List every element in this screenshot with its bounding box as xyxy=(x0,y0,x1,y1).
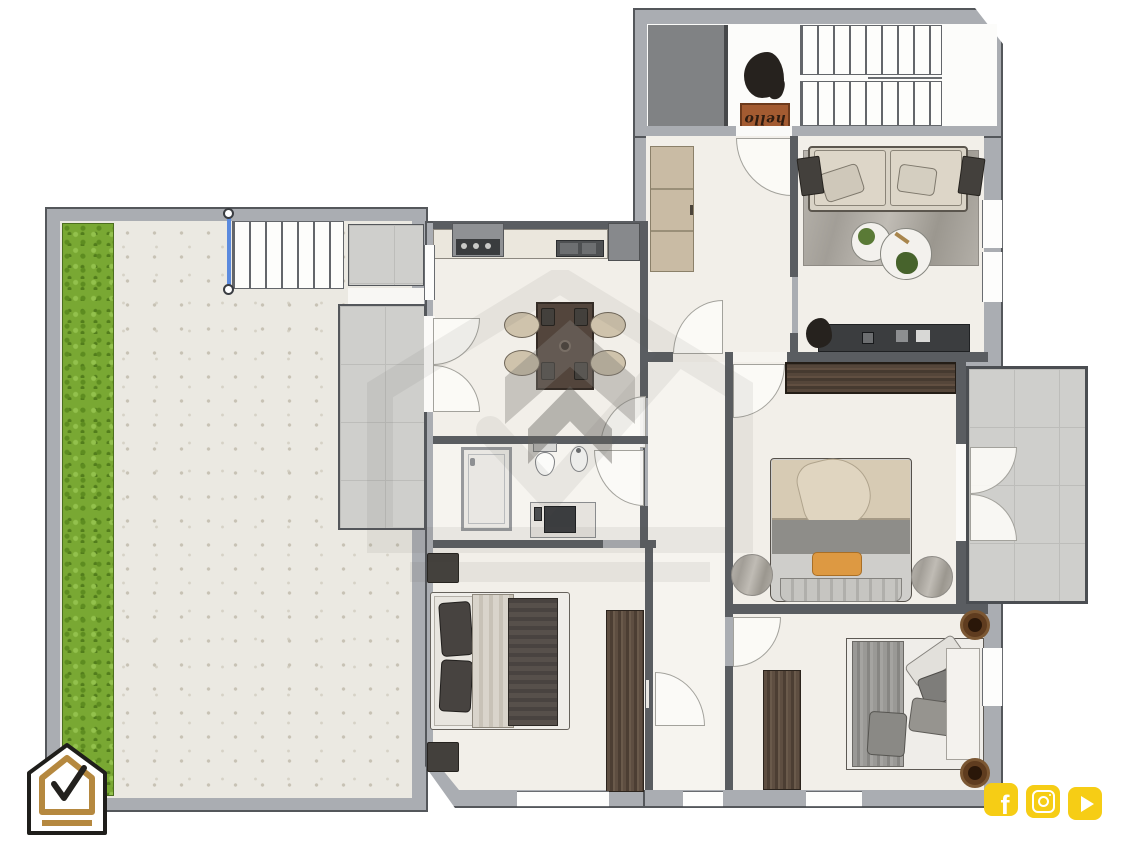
hall-closet-divider1 xyxy=(651,188,693,190)
burner-dot-3 xyxy=(485,243,491,249)
se-bed-pillow-4 xyxy=(867,711,908,758)
burner-dot-1 xyxy=(461,243,467,249)
table-centerpiece xyxy=(559,340,571,352)
dining-chair-1 xyxy=(504,312,540,338)
dining-chair-4 xyxy=(590,350,626,376)
burner-dot-2 xyxy=(473,243,479,249)
garden-lawn-strip xyxy=(62,223,114,796)
sw-wardrobe-handle xyxy=(646,680,649,708)
master-doorway-gap xyxy=(733,352,787,362)
sw-bed-pillow-bottom xyxy=(439,659,474,713)
se-side-table-top-center xyxy=(968,618,982,632)
wall-kitchen-hall xyxy=(640,221,648,398)
wall-hall-corridor-stub xyxy=(646,352,673,362)
staircase-divider xyxy=(868,77,942,79)
dining-chair-2 xyxy=(504,350,540,376)
garden-tiled-path-main xyxy=(338,304,426,530)
master-bed-footboard xyxy=(780,578,902,602)
tv-console xyxy=(818,324,970,352)
staircase-lower-flight xyxy=(800,81,942,126)
hall-closet-divider2 xyxy=(651,230,693,232)
master-round-rug-left xyxy=(731,554,773,596)
wall-kitchen-corridor-lower xyxy=(640,506,648,548)
master-round-rug-right xyxy=(911,556,953,598)
fridge xyxy=(608,223,640,261)
wall-master-balcony-lower xyxy=(956,541,966,604)
garden-staircase xyxy=(232,221,344,289)
place-setting-3 xyxy=(541,362,555,380)
wall-master-se-bedroom xyxy=(733,604,988,614)
master-wardrobe xyxy=(785,362,957,394)
sw-wardrobe xyxy=(606,610,644,792)
sw-nightstand-bottom xyxy=(427,742,459,772)
shower-drain xyxy=(470,458,475,466)
wall-corridor-sw-stub xyxy=(648,540,656,548)
floor-plan-canvas: hello xyxy=(0,0,1133,850)
tv-console-item2 xyxy=(896,330,908,342)
coffee-table-plant-large xyxy=(896,252,918,274)
vanity-item xyxy=(534,507,542,521)
tv-console-item3 xyxy=(916,330,930,342)
kitchen-window xyxy=(424,245,435,300)
tv-plant xyxy=(806,318,832,348)
garden-stair-rail xyxy=(227,214,231,292)
se-bed-sheet-fold xyxy=(946,648,980,760)
garden-stair-rail-post-top xyxy=(223,208,234,219)
balcony-doorway-gap xyxy=(956,444,966,541)
bottom-window-1 xyxy=(517,791,609,807)
wall-corridor-se-lower xyxy=(725,666,733,790)
sink-basin-right xyxy=(582,243,596,254)
living-window-upper xyxy=(982,200,1003,248)
sw-bed-blanket xyxy=(508,598,558,726)
master-bed-blanket xyxy=(772,520,910,554)
dining-chair-3 xyxy=(590,312,626,338)
coffee-table-plant-small xyxy=(858,228,875,245)
hall-closet-handle xyxy=(690,205,693,215)
bidet-faucet xyxy=(576,448,581,453)
garden-stair-rail-post-bottom xyxy=(223,284,234,295)
master-orange-pillow xyxy=(812,552,862,576)
wall-bath-sw-bedroom xyxy=(433,540,603,548)
instagram-button[interactable] xyxy=(1026,785,1060,818)
instagram-icon xyxy=(1032,790,1055,813)
hall-closet xyxy=(650,146,694,272)
doormat-text: hello xyxy=(744,111,786,127)
se-bedroom-window xyxy=(982,648,1003,706)
staircase-upper-flight xyxy=(800,25,942,75)
tv-console-item1 xyxy=(862,332,874,344)
facebook-button[interactable]: f xyxy=(984,783,1018,816)
living-window-lower xyxy=(982,252,1003,302)
place-setting-4 xyxy=(574,362,588,380)
wall-hall-living-upper xyxy=(790,136,798,277)
sink-basin-left xyxy=(560,243,578,254)
elevator-shaft xyxy=(648,25,728,126)
corridor-mid-floor xyxy=(648,362,725,548)
wall-sw-corridor xyxy=(645,548,653,790)
youtube-icon xyxy=(1081,796,1094,812)
sw-nightstand-top xyxy=(427,553,459,583)
bottom-window-2 xyxy=(683,791,723,807)
wall-master-balcony-upper xyxy=(956,362,966,444)
toilet-tank xyxy=(533,443,557,452)
sofa-throw-pillow-right xyxy=(896,163,938,196)
se-wardrobe xyxy=(763,670,801,790)
house-check-logo xyxy=(26,742,108,836)
vanity-sink xyxy=(544,506,576,533)
garden-tiled-path-upper xyxy=(348,224,424,286)
se-side-table-bottom-center xyxy=(968,766,982,780)
sw-bed-pillow-top xyxy=(438,601,474,657)
corridor-low-floor xyxy=(653,548,725,790)
youtube-button[interactable] xyxy=(1068,787,1102,820)
place-setting-2 xyxy=(574,308,588,326)
garden-path-landing xyxy=(348,288,424,304)
place-setting-1 xyxy=(541,308,555,326)
bottom-window-3 xyxy=(806,791,862,807)
